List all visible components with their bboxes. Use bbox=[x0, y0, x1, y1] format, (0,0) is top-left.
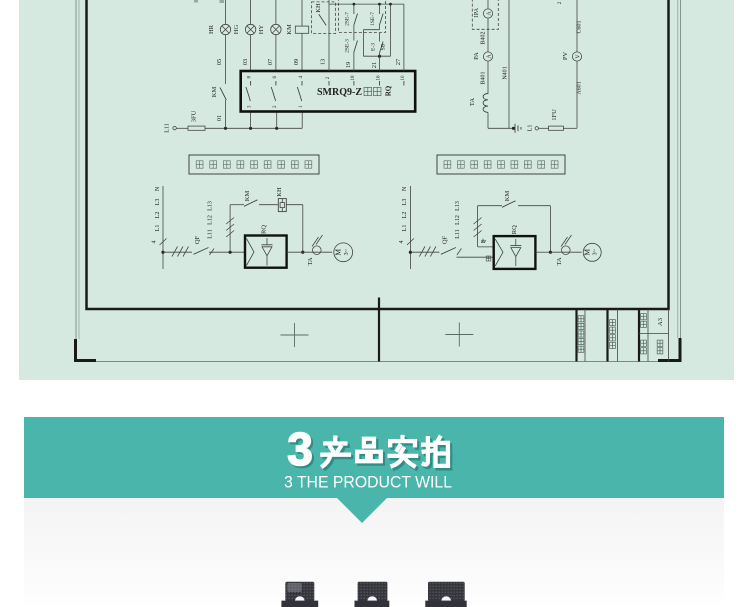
svg-text:HG: HG bbox=[233, 25, 240, 35]
svg-text:KM: KM bbox=[244, 191, 251, 202]
svg-text:TA: TA bbox=[307, 257, 314, 265]
svg-text:3 THE PRODUCT WILL: 3 THE PRODUCT WILL bbox=[284, 473, 452, 492]
svg-text:1SE-7: 1SE-7 bbox=[370, 12, 376, 26]
svg-text:10: 10 bbox=[401, 75, 406, 81]
svg-text:05: 05 bbox=[216, 59, 223, 66]
svg-text:L11: L11 bbox=[208, 229, 214, 238]
svg-text:L11: L11 bbox=[455, 229, 461, 238]
svg-text:QF: QF bbox=[194, 235, 201, 244]
svg-text:03: 03 bbox=[242, 59, 249, 66]
svg-text:A601: A601 bbox=[577, 81, 583, 94]
svg-text:KM: KM bbox=[504, 191, 511, 202]
svg-text:N: N bbox=[402, 186, 408, 191]
svg-text:27: 27 bbox=[395, 58, 402, 65]
svg-text:3~: 3~ bbox=[593, 248, 599, 255]
svg-text:3~: 3~ bbox=[344, 248, 350, 255]
svg-text:3: 3 bbox=[287, 423, 313, 475]
svg-text:2SE-3: 2SE-3 bbox=[345, 39, 351, 53]
svg-text:L12: L12 bbox=[455, 215, 461, 225]
svg-text:M: M bbox=[582, 249, 591, 256]
svg-text:09: 09 bbox=[293, 59, 300, 66]
svg-text:3FU: 3FU bbox=[191, 110, 198, 122]
svg-text:M: M bbox=[333, 249, 342, 256]
svg-text:N401: N401 bbox=[503, 66, 509, 79]
svg-text:RQ: RQ bbox=[511, 225, 518, 234]
svg-text:TA: TA bbox=[556, 257, 563, 265]
svg-text:L13: L13 bbox=[208, 201, 214, 211]
svg-text:E-3: E-3 bbox=[371, 43, 377, 51]
svg-text:B401: B401 bbox=[480, 71, 486, 84]
svg-text:A3: A3 bbox=[657, 318, 664, 326]
svg-text:4: 4 bbox=[152, 241, 158, 244]
svg-text:L2: L2 bbox=[402, 212, 408, 219]
svg-text:1FU: 1FU bbox=[551, 109, 558, 121]
svg-text:21: 21 bbox=[371, 62, 378, 69]
svg-text:KM: KM bbox=[211, 87, 218, 98]
svg-text:L1: L1 bbox=[155, 225, 161, 232]
svg-text:L3: L3 bbox=[155, 199, 161, 206]
svg-text:L12: L12 bbox=[208, 215, 214, 225]
svg-text:KM: KM bbox=[286, 24, 293, 35]
svg-text:N: N bbox=[155, 186, 161, 191]
svg-text:L3: L3 bbox=[402, 199, 408, 206]
svg-text:RQ: RQ bbox=[261, 225, 268, 234]
svg-text:L1: L1 bbox=[402, 225, 408, 232]
svg-text:C601: C601 bbox=[577, 20, 583, 33]
svg-text:PA: PA bbox=[473, 52, 480, 60]
svg-text:L1: L1 bbox=[527, 125, 533, 132]
svg-text:A: A bbox=[486, 11, 492, 16]
svg-text:KH: KH bbox=[315, 3, 322, 13]
svg-text:TA: TA bbox=[469, 98, 476, 106]
svg-text:2: 2 bbox=[557, 1, 563, 4]
svg-text:19: 19 bbox=[345, 62, 352, 69]
svg-text:16: 16 bbox=[377, 75, 382, 81]
svg-text:V: V bbox=[575, 54, 581, 59]
svg-text:RQ: RQ bbox=[385, 85, 393, 96]
svg-text:PV: PV bbox=[562, 52, 569, 61]
svg-text:01: 01 bbox=[216, 115, 223, 122]
svg-text:1PA: 1PA bbox=[474, 7, 480, 18]
svg-text:L2: L2 bbox=[155, 212, 161, 219]
svg-text:SB: SB bbox=[381, 43, 387, 50]
svg-text:HY: HY bbox=[258, 25, 265, 35]
svg-text:07: 07 bbox=[267, 58, 274, 65]
svg-text:18: 18 bbox=[351, 75, 356, 81]
svg-text:L13: L13 bbox=[455, 201, 461, 211]
svg-text:QF: QF bbox=[441, 235, 448, 244]
svg-text:4: 4 bbox=[399, 241, 405, 244]
svg-text:HR: HR bbox=[208, 24, 215, 34]
svg-text:L11: L11 bbox=[164, 123, 170, 132]
svg-text:SMRQ9-Z: SMRQ9-Z bbox=[317, 87, 362, 98]
svg-text:2SE-7: 2SE-7 bbox=[345, 12, 351, 26]
svg-text:13: 13 bbox=[320, 59, 327, 66]
svg-text:KH: KH bbox=[276, 187, 283, 197]
svg-text:B402: B402 bbox=[480, 31, 486, 44]
svg-text:A: A bbox=[486, 54, 492, 59]
